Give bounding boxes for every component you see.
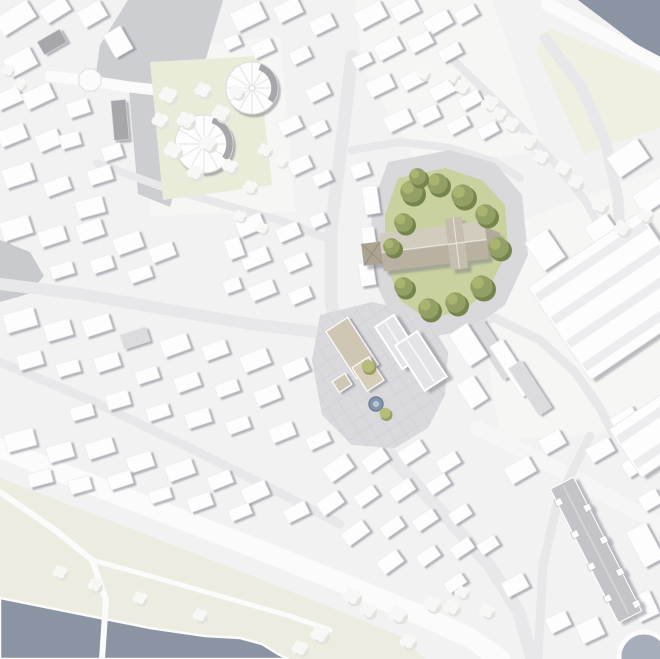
site-plan-svg [0, 0, 660, 659]
building [111, 99, 129, 140]
bridge-node [79, 69, 101, 91]
site-plan-viewport [0, 0, 660, 659]
fountain [369, 397, 383, 411]
